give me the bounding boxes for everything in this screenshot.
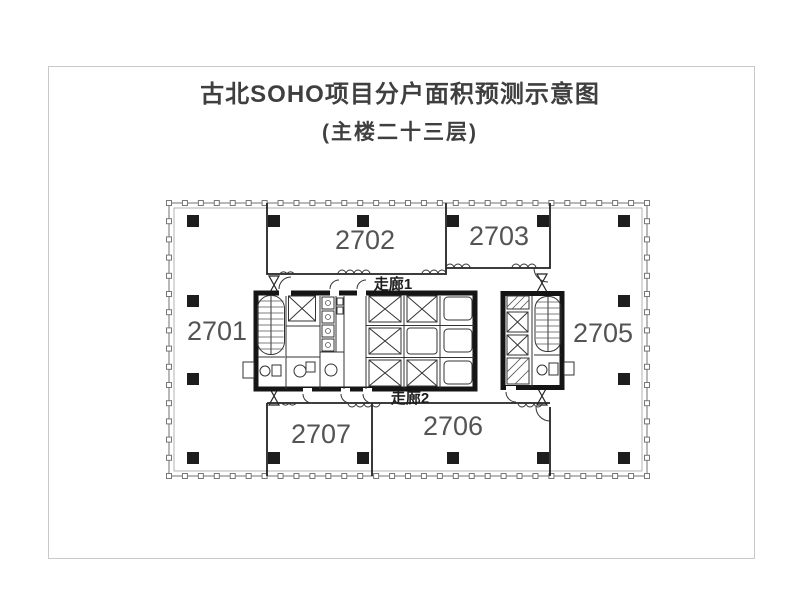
door-swing-icon	[330, 280, 339, 289]
room-label-2707: 2707	[291, 419, 351, 449]
corridor-1-label: 走廊1	[374, 275, 412, 293]
core-main	[243, 277, 475, 403]
door-swing-icon	[357, 280, 366, 289]
room-label-2701: 2701	[187, 316, 247, 346]
duct-icon	[564, 362, 574, 375]
floor-plan: 2701 2702 2703 2705 2706 2707 走廊1 走廊2	[0, 0, 800, 600]
duct-icon	[243, 362, 254, 378]
door-swing-icon	[536, 407, 550, 421]
page: { "page": { "title": "古北SOHO项目分户面积预测示意图"…	[0, 0, 800, 600]
core-east	[503, 294, 574, 403]
room-label-2703: 2703	[469, 221, 529, 251]
room-label-2705: 2705	[573, 318, 633, 348]
room-label-2706: 2706	[423, 411, 483, 441]
corridor-2-label: 走廊2	[391, 389, 429, 407]
room-label-2702: 2702	[335, 225, 395, 255]
door-swing-icon	[279, 277, 291, 289]
double-door-icon	[537, 274, 547, 292]
